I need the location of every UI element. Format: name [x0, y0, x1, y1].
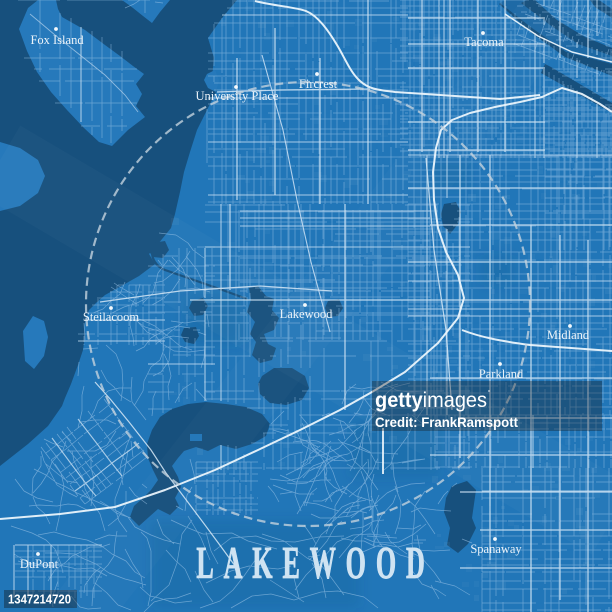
svg-text:Parkland: Parkland — [479, 367, 524, 381]
svg-text:Steilacoom: Steilacoom — [83, 310, 140, 324]
svg-text:University Place: University Place — [196, 89, 279, 103]
svg-text:LAKEWOOD: LAKEWOOD — [196, 538, 434, 588]
svg-text:Spanaway: Spanaway — [470, 542, 522, 556]
svg-text:DuPont: DuPont — [20, 557, 59, 571]
svg-text:Fox Island: Fox Island — [30, 33, 84, 47]
svg-text:Fircrest: Fircrest — [299, 77, 338, 91]
svg-text:Midland: Midland — [547, 328, 590, 342]
